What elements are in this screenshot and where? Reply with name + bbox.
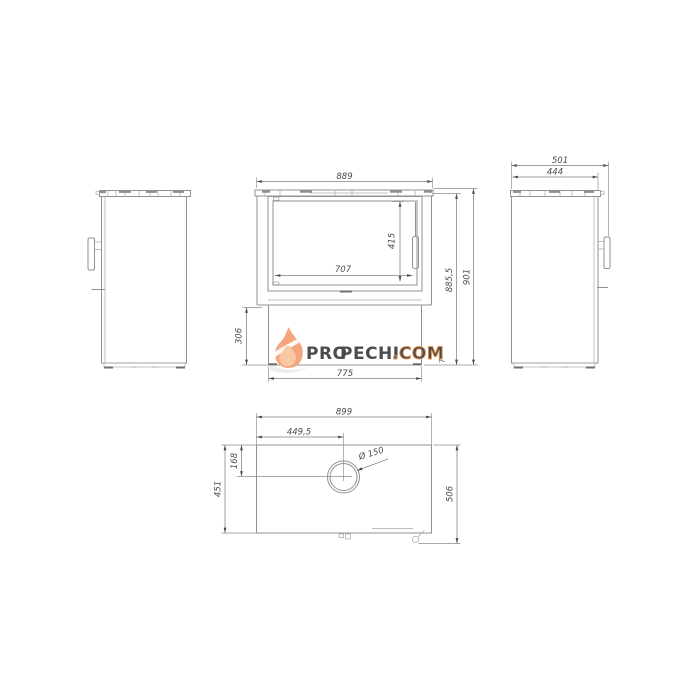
rear-clip (339, 534, 351, 539)
dim-top-depth-total: 506 (446, 485, 456, 502)
dim-glass-height: 415 (388, 233, 398, 249)
dim-front-width: 889 (336, 172, 352, 182)
dim-flue-offset-x: 449,5 (287, 428, 311, 438)
dim-depth-body: 444 (547, 168, 563, 178)
dim-plinth-width: 775 (337, 369, 353, 379)
dim-plinth-height: 306 (235, 327, 245, 344)
dim-height-without-top: 885,5 (445, 268, 455, 292)
rear-hook (412, 531, 424, 543)
watermark-com: .COM (392, 344, 444, 364)
right-side-view: 501 444 (511, 156, 611, 368)
door-handle-left-view (88, 238, 95, 270)
dim-top-depth-body: 451 (214, 481, 224, 497)
top-view: 899 449,5 168 451 Ø 150 506 (214, 408, 461, 544)
technical-drawing: 889 415 707 306 7 (0, 0, 700, 700)
drawing-canvas: 889 415 707 306 7 (0, 0, 700, 700)
dim-flue-offset-y: 168 (230, 452, 240, 469)
left-side-view (88, 191, 191, 368)
dim-flue-diameter: Ø 150 (356, 445, 385, 463)
dim-depth-total: 501 (552, 156, 568, 166)
flame-icon (272, 327, 303, 368)
watermark-pechi: PECHI (340, 344, 400, 364)
dim-height-total: 901 (463, 269, 473, 285)
door-handle-right-view (604, 237, 610, 269)
dim-top-width: 899 (336, 408, 352, 418)
dim-glass-width: 707 (335, 265, 352, 275)
watermark: PRO PECHI .COM (270, 327, 444, 373)
door-handle-front-view (413, 237, 419, 269)
